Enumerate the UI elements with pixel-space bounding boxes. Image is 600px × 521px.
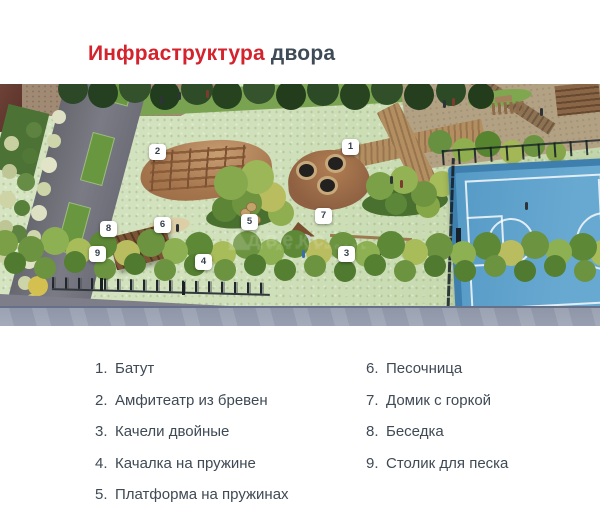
legend-item-number: 4. (95, 455, 115, 472)
legend-item-label: Домик с горкой (386, 392, 491, 409)
person (176, 224, 179, 232)
legend-item: 7.Домик с горкой (366, 392, 508, 409)
legend-item-label: Беседка (386, 423, 444, 440)
person (400, 180, 403, 188)
person (390, 176, 393, 184)
bush-row-white (52, 110, 66, 124)
legend-item-label: Песочница (386, 360, 462, 377)
legend-item-number: 2. (95, 392, 115, 409)
legend-item: 8.Беседка (366, 423, 508, 440)
legend-item-label: Платформа на пружинах (115, 486, 289, 503)
person (160, 96, 163, 104)
wood-structure (555, 84, 600, 116)
gate-post (100, 278, 103, 291)
title-rest: двора (265, 42, 335, 65)
legend-item-label: Качалка на пружине (115, 455, 256, 472)
legend-item-label: Амфитеатр из бревен (115, 392, 268, 409)
map-marker-4: 4 (195, 254, 212, 270)
map-marker-8: 8 (100, 221, 117, 237)
basketball-backboard (456, 228, 461, 248)
legend-item: 3.Качели двойные (95, 423, 289, 440)
map-marker-7: 7 (315, 208, 332, 224)
legend-item-number: 3. (95, 423, 115, 440)
spring-platform (246, 202, 257, 212)
legend-item-number: 6. (366, 360, 386, 377)
person (540, 108, 543, 116)
tree-cluster (214, 166, 248, 200)
legend-column-right: 6.Песочница7.Домик с горкой8.Беседка9.Ст… (366, 360, 508, 486)
legend-item-label: Качели двойные (115, 423, 229, 440)
person (206, 90, 209, 98)
bush-row-green (26, 122, 42, 138)
legend-item: 9.Столик для песка (366, 455, 508, 472)
trampoline (325, 154, 346, 173)
map-marker-1: 1 (342, 139, 359, 155)
gate-post (182, 282, 185, 295)
tree-row-bottom-front (4, 252, 26, 274)
legend-item-label: Батут (115, 360, 154, 377)
courtyard-render: Адвекс недвижимость 123456789 (0, 84, 600, 326)
person (443, 100, 446, 108)
legend-item: 5.Платформа на пружинах (95, 486, 289, 503)
legend-column-left: 1.Батут2.Амфитеатр из бревен3.Качели дво… (95, 360, 289, 518)
bush-yellow (28, 276, 48, 296)
map-marker-2: 2 (149, 144, 166, 160)
balance-posts (492, 101, 525, 115)
bush-row-far (4, 136, 19, 151)
legend-item-number: 7. (366, 392, 386, 409)
legend-item-number: 9. (366, 455, 386, 472)
map-marker-3: 3 (338, 246, 355, 262)
legend-item: 1.Батут (95, 360, 289, 377)
trampoline (317, 176, 338, 195)
front-road (0, 306, 600, 326)
legend-item-number: 1. (95, 360, 115, 377)
person (525, 202, 528, 210)
trampoline (296, 161, 317, 180)
legend-item-number: 5. (95, 486, 115, 503)
page-title: Инфраструктура двора (88, 42, 335, 66)
map-marker-5: 5 (241, 214, 258, 230)
map-marker-6: 6 (154, 217, 171, 233)
legend-item: 2.Амфитеатр из бревен (95, 392, 289, 409)
legend-item: 4.Качалка на пружине (95, 455, 289, 472)
legend-item-label: Столик для песка (386, 455, 508, 472)
title-highlight: Инфраструктура (88, 42, 265, 65)
map-marker-9: 9 (89, 246, 106, 262)
legend-item: 6.Песочница (366, 360, 508, 377)
page: { "title": { "highlight": "Инфраструктур… (0, 0, 600, 521)
person (178, 92, 181, 100)
person (452, 98, 455, 106)
legend-item-number: 8. (366, 423, 386, 440)
